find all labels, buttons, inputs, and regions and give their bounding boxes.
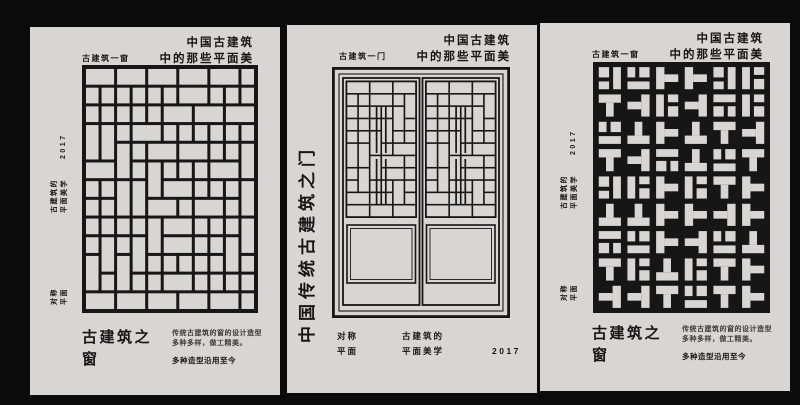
aesthetic-label: 古建筑的 平面美学	[402, 329, 444, 359]
series-label: 古建筑一窗	[82, 53, 130, 64]
poster-main-title: 中国古建筑 中的那些平面美	[417, 33, 512, 65]
poster-window-right: 古建筑一窗 中国古建筑 中的那些平面美 2017 古建筑的 平面美学 对称 平面…	[540, 23, 790, 391]
fret-lattice-graphic	[593, 62, 770, 313]
poster-window-left: 古建筑一窗 中国古建筑 中的那些平面美 2017 古建筑的 平面美学 对称 平面…	[30, 27, 280, 395]
aesthetic-line1: 古建筑的	[560, 175, 570, 209]
symmetry-line2: 平面	[337, 344, 358, 359]
footer-title-line2: 窗	[82, 349, 152, 371]
description-line2: 多种多样，做工精美。	[172, 339, 262, 349]
main-title-line2: 中的那些平面美	[417, 49, 512, 65]
poster-description: 传统古建筑的窗的设计造型 多种多样，做工精美。 多种造型沿用至今	[172, 329, 262, 366]
aesthetic-label-vertical: 古建筑的 平面美学	[560, 175, 580, 209]
door-vertical-title: 中国传统古建筑之门	[297, 145, 319, 343]
description-line2: 多种多样，做工精美。	[682, 335, 772, 345]
symmetry-line2: 平面	[570, 284, 580, 301]
aesthetic-line2: 平面美学	[570, 175, 580, 209]
poster-gallery: 古建筑一窗 中国古建筑 中的那些平面美 2017 古建筑的 平面美学 对称 平面…	[0, 0, 800, 405]
main-title-line1: 中国古建筑	[160, 35, 255, 51]
footer-title-line1: 古建筑之	[82, 327, 152, 349]
poster-footer-title: 古建筑之 窗	[592, 323, 662, 367]
symmetry-line1: 对称	[560, 284, 570, 301]
poster-footer-title: 古建筑之 窗	[82, 327, 152, 371]
year-label: 2017	[492, 344, 521, 359]
aesthetic-line2: 平面美学	[60, 179, 70, 213]
series-label: 古建筑一门	[339, 51, 387, 62]
aesthetic-line1: 古建筑的	[50, 179, 60, 213]
window-lattice-graphic	[82, 65, 258, 313]
description-line1: 传统古建筑的窗的设计造型	[172, 329, 262, 339]
description-bold-line: 多种造型沿用至今	[172, 356, 262, 366]
series-label: 古建筑一窗	[592, 49, 640, 60]
symmetry-line1: 对称	[337, 329, 358, 344]
door-graphic	[332, 67, 510, 318]
aesthetic-line2: 平面美学	[402, 344, 444, 359]
symmetry-line2: 平面	[60, 288, 70, 305]
symmetry-label: 对称 平面	[337, 329, 358, 359]
year-label-vertical: 2017	[60, 133, 67, 159]
aesthetic-label-vertical: 古建筑的 平面美学	[50, 179, 70, 213]
description-bold-line: 多种造型沿用至今	[682, 352, 772, 362]
main-title-line2: 中的那些平面美	[670, 47, 765, 63]
symmetry-label-vertical: 对称 平面	[560, 284, 580, 301]
poster-description: 传统古建筑的窗的设计造型 多种多样，做工精美。 多种造型沿用至今	[682, 325, 772, 362]
main-title-line1: 中国古建筑	[670, 31, 765, 47]
description-line1: 传统古建筑的窗的设计造型	[682, 325, 772, 335]
year-label-vertical: 2017	[570, 129, 577, 155]
poster-door: 古建筑一门 中国古建筑 中的那些平面美 中国传统古建筑之门 对称 平面 古建筑的…	[287, 25, 537, 393]
footer-title-line1: 古建筑之	[592, 323, 662, 345]
symmetry-label-vertical: 对称 平面	[50, 288, 70, 305]
main-title-line1: 中国古建筑	[417, 33, 512, 49]
symmetry-line1: 对称	[50, 288, 60, 305]
aesthetic-line1: 古建筑的	[402, 329, 444, 344]
footer-title-line2: 窗	[592, 345, 662, 367]
poster-main-title: 中国古建筑 中的那些平面美	[160, 35, 255, 67]
poster-main-title: 中国古建筑 中的那些平面美	[670, 31, 765, 63]
